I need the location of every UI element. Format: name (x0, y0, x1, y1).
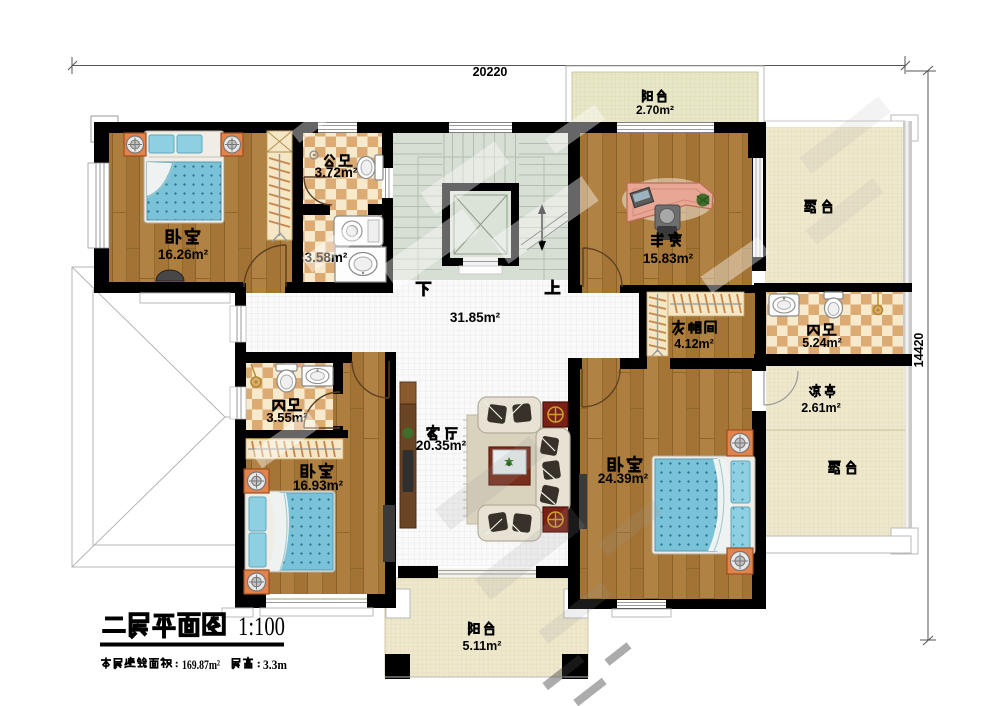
svg-text:5.24m²: 5.24m² (802, 336, 842, 350)
svg-text:3.3m: 3.3m (263, 657, 287, 672)
svg-text:24.39m²: 24.39m² (598, 471, 649, 486)
svg-text:16.93m²: 16.93m² (293, 478, 344, 493)
svg-text:20220: 20220 (473, 65, 508, 79)
svg-text:15.83m²: 15.83m² (643, 251, 694, 266)
svg-text:20.35m²: 20.35m² (416, 438, 467, 453)
svg-text:2.70m²: 2.70m² (636, 103, 674, 117)
svg-text:31.85m²: 31.85m² (450, 310, 501, 325)
svg-text:16.26m²: 16.26m² (158, 247, 209, 262)
svg-text:5.11m²: 5.11m² (463, 639, 502, 653)
svg-text:169.87m²: 169.87m² (182, 657, 220, 672)
svg-text:1:100: 1:100 (238, 612, 285, 641)
svg-text:14420: 14420 (912, 333, 926, 368)
svg-text:2.61m²: 2.61m² (801, 401, 841, 415)
svg-text:3.72m²: 3.72m² (315, 165, 358, 180)
svg-text:4.12m²: 4.12m² (674, 337, 714, 351)
